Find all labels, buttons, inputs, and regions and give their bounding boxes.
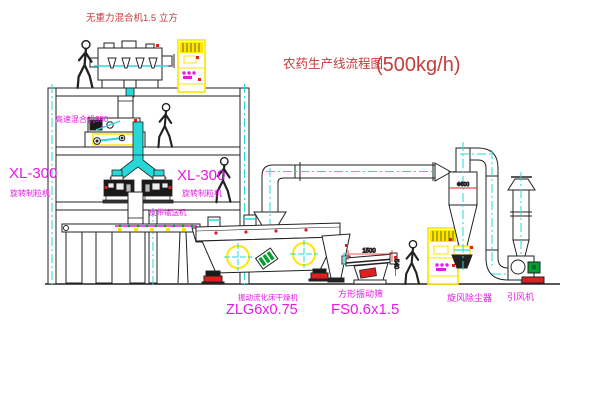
screen-dim-height: 540 (393, 259, 399, 270)
gravity-mixer-label: 无重力混合机1.5 立方 (86, 12, 178, 24)
granulator-left-name: 旋转制粒机 (10, 188, 50, 198)
dryer-model-label: ZLG6x0.75 (226, 302, 298, 318)
belt-conveyor (62, 224, 208, 283)
diagram-title-capacity: (500kg/h) (376, 54, 461, 76)
diagram-title: 农药生产线流程图 (283, 56, 383, 71)
person-figure (405, 241, 419, 284)
person-figure (158, 104, 172, 148)
screen-dim-length: 1500 (362, 249, 376, 255)
cyclone-name-label: 旋风除尘器 (447, 292, 492, 303)
fluid-bed-dryer (196, 215, 340, 284)
high-speed-mixer-label: 高速混合机350 (55, 114, 109, 124)
fan-name-label: 引风机 (507, 291, 534, 302)
down-duct (128, 192, 143, 224)
control-cabinet-1 (178, 40, 205, 92)
granulator-right-model: XL-300 (177, 167, 225, 184)
induced-draft-fan (508, 256, 544, 283)
exhaust-duct (254, 162, 456, 232)
granulator-right (141, 170, 173, 203)
screen-name-label: 方形振动筛 (338, 288, 383, 299)
dryer-name-label: 振动流化床干燥机 (238, 292, 298, 302)
cyclone-dim: Φ500 (457, 182, 470, 188)
cad-flow-diagram: 1500 540 Φ500 无重力混合机1.5 立 (0, 0, 600, 403)
belt-conveyor-label: 皮带输送机 (149, 207, 187, 217)
screen-model-label: FS0.6x1.5 (331, 301, 399, 318)
vibrating-screen: 1500 540 (342, 249, 399, 285)
granulator-right-name: 旋转制粒机 (182, 188, 222, 198)
granulator-left-model: XL-300 (9, 165, 57, 182)
